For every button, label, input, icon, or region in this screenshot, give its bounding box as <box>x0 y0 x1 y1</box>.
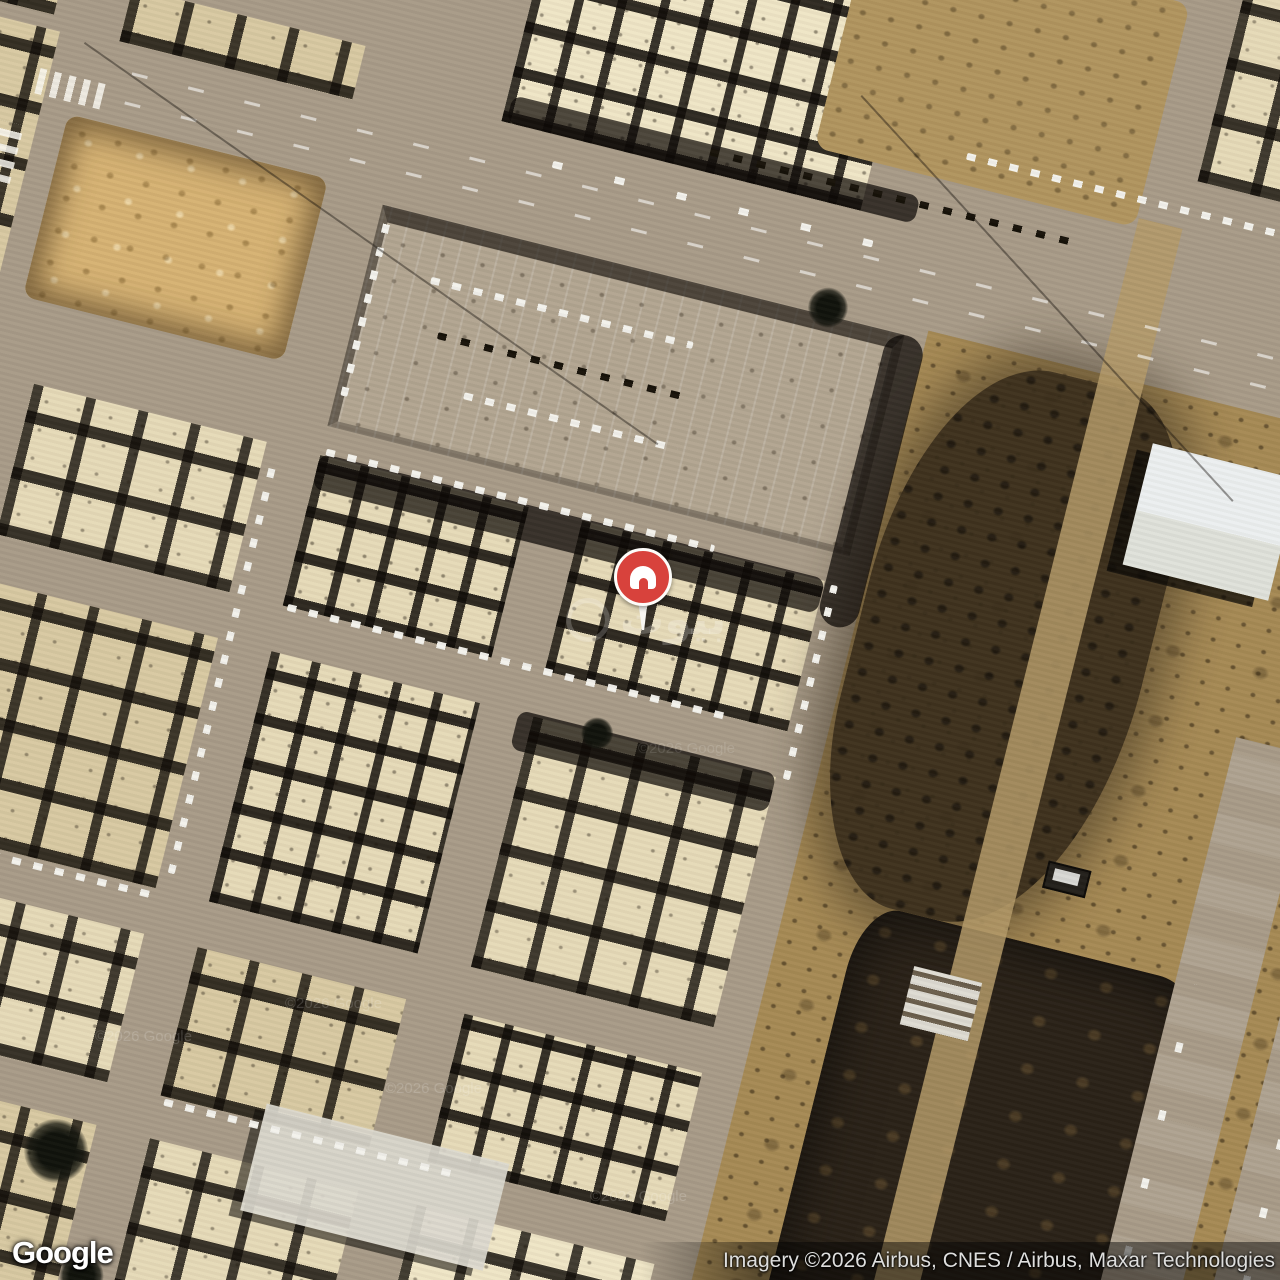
city-block <box>0 876 144 1083</box>
city-block <box>0 0 116 15</box>
google-tile-watermark: ©2026 Google <box>95 1028 192 1045</box>
city-block <box>0 580 218 888</box>
city-block <box>119 0 365 99</box>
city-block <box>209 651 480 953</box>
map-attribution: Imagery ©2026 Airbus, CNES / Airbus, Max… <box>723 1249 1275 1273</box>
google-tile-watermark: ©2026 Google <box>590 1188 687 1205</box>
home-icon <box>630 566 656 589</box>
pin-circle <box>614 548 672 606</box>
satellite-map[interactable]: ©2026 Google ©2026 Google ©2026 Google ©… <box>0 0 1280 1280</box>
google-tile-watermark: ©2026 Google <box>285 995 382 1012</box>
google-logo[interactable]: Google <box>12 1235 113 1271</box>
sand-lot <box>23 114 329 361</box>
google-tile-watermark: ©2026 Google <box>385 1080 482 1097</box>
crosswalk <box>34 68 108 110</box>
home-icon-door <box>639 578 648 589</box>
google-tile-watermark: ©2026 Google <box>638 740 735 757</box>
city-block <box>0 384 267 592</box>
map-marker-pin[interactable] <box>604 538 682 634</box>
